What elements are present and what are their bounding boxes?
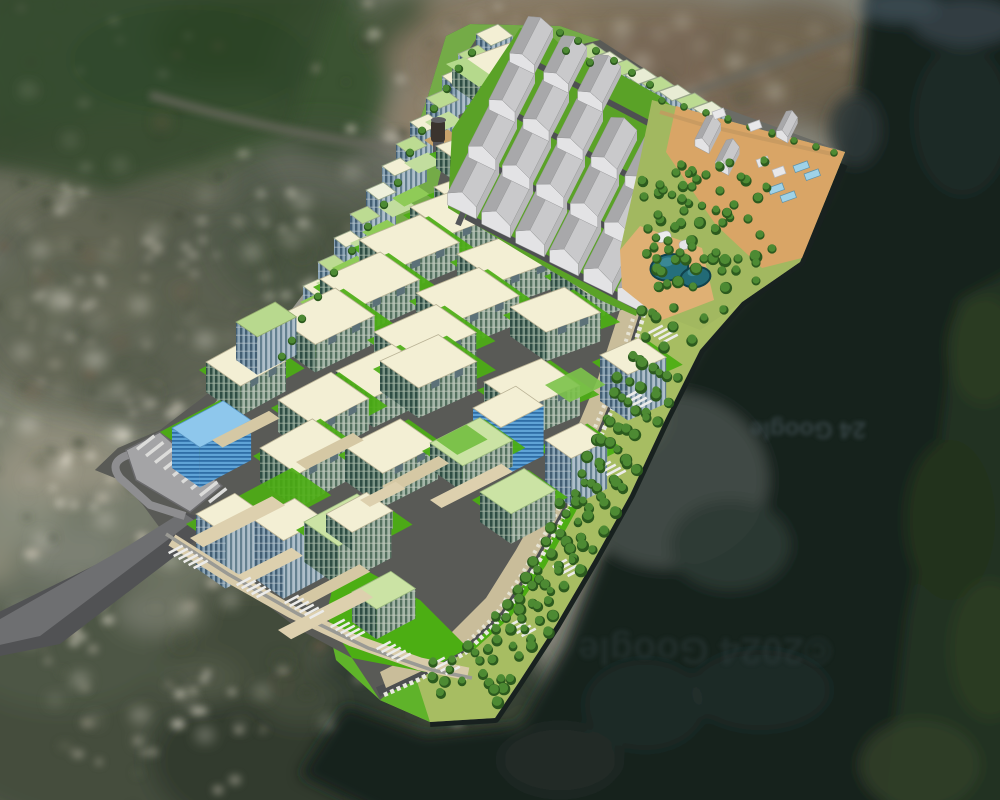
svg-text:24 Google: 24 Google — [750, 416, 866, 443]
svg-text:©2024 Google: ©2024 Google — [578, 629, 832, 671]
